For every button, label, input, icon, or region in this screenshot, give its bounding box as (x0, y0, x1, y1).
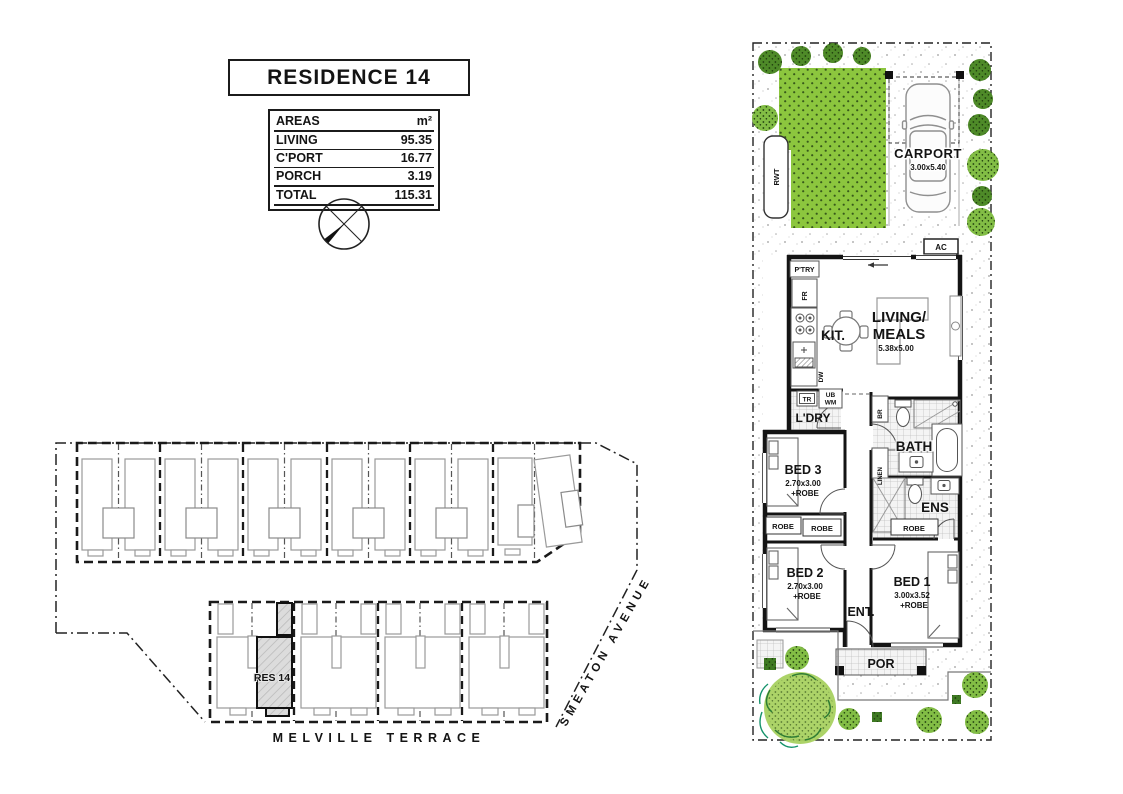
porch-post (917, 666, 926, 675)
page-title: RESIDENCE 14 (267, 66, 431, 90)
carport-dims: 3.00x5.40 (910, 163, 946, 172)
rwt-label: RWT (772, 168, 781, 185)
north-compass-icon (314, 194, 376, 256)
living-label-2: MEALS (873, 326, 926, 343)
carport-label: CARPORT (894, 146, 962, 161)
total-label: TOTAL (276, 188, 317, 203)
living-dims: 5.38x5.00 (878, 344, 914, 353)
fridge-label: FR (802, 291, 809, 300)
estate-boundary-sw (56, 633, 205, 722)
end-dwelling (498, 454, 585, 555)
bed2-dims: 2.70x3.00 (787, 582, 823, 591)
robe-label-2: ROBE (811, 524, 833, 533)
table-row: LIVING 95.35 (274, 132, 434, 150)
plan-sheet: RESIDENCE 14 AREAS m² LIVING 95.35 C'POR… (0, 0, 1123, 794)
wm-label: WM (825, 400, 837, 407)
tv-unit (950, 296, 961, 356)
bed3-label: BED 3 (785, 463, 822, 477)
total-value: 115.31 (394, 188, 432, 203)
kitchen-fixtures (790, 261, 819, 386)
entry-label: ENT. (847, 605, 874, 619)
bed3-dims: 2.70x3.00 (785, 479, 821, 488)
porch-post (835, 666, 844, 675)
row-value: 3.19 (408, 169, 432, 184)
residence-title-box: RESIDENCE 14 (228, 59, 470, 96)
row-label: LIVING (276, 133, 318, 148)
street-smeaton-avenue: SMEATON AVENUE (558, 575, 654, 729)
top-strip-dwellings (82, 454, 585, 556)
bath-label: BATH (896, 439, 933, 454)
row-label: C'PORT (276, 151, 323, 166)
floor-plan: CARPORT 3.00x5.40 RWT AC (745, 35, 1005, 750)
lawn (779, 68, 886, 228)
table-row: C'PORT 16.77 (274, 150, 434, 168)
north-needle (325, 224, 345, 243)
dishwasher-label: DW (818, 371, 825, 383)
broom-label: BR (877, 409, 884, 419)
ac-unit: AC (924, 239, 958, 254)
areas-header-unit: m² (417, 114, 432, 129)
row-value: 95.35 (401, 133, 432, 148)
ub-label: UB (826, 392, 836, 399)
areas-header-row: AREAS m² (274, 113, 434, 132)
rainwater-tank: RWT (764, 136, 788, 218)
bed3-robe: +ROBE (791, 489, 819, 498)
pantry-label: P'TRY (794, 267, 814, 274)
laundry-label: L'DRY (795, 411, 830, 425)
table-row: PORCH 3.19 (274, 168, 434, 187)
kitchen-label: KIT. (821, 328, 845, 343)
bed1-robe: +ROBE (900, 601, 928, 610)
bed1-bed (928, 552, 959, 638)
linen-label: LINEN (878, 467, 884, 485)
row-value: 16.77 (401, 151, 432, 166)
street-melville-terrace: MELVILLE TERRACE (273, 731, 486, 745)
res14-label: RES 14 (254, 672, 290, 684)
ens-robe-label: ROBE (903, 524, 925, 533)
areas-header-label: AREAS (276, 114, 320, 129)
porch-label: POR (867, 657, 894, 671)
bed1-dims: 3.00x3.52 (894, 591, 930, 600)
ens-label: ENS (921, 500, 949, 515)
bed2-label: BED 2 (787, 566, 824, 580)
highlighted-lot-res14 (257, 603, 292, 716)
robe-label-1: ROBE (772, 522, 794, 531)
bed2-robe: +ROBE (793, 592, 821, 601)
trough-label: TR (803, 397, 812, 404)
living-label-1: LIVING/ (872, 309, 927, 326)
ac-label: AC (935, 243, 947, 252)
row-label: PORCH (276, 169, 321, 184)
canopy-tree-icon (760, 672, 836, 747)
bed1-label: BED 1 (894, 575, 931, 589)
site-plan: RES 14 MELVILLE TERRACE SMEATON AVENUE (40, 425, 685, 770)
